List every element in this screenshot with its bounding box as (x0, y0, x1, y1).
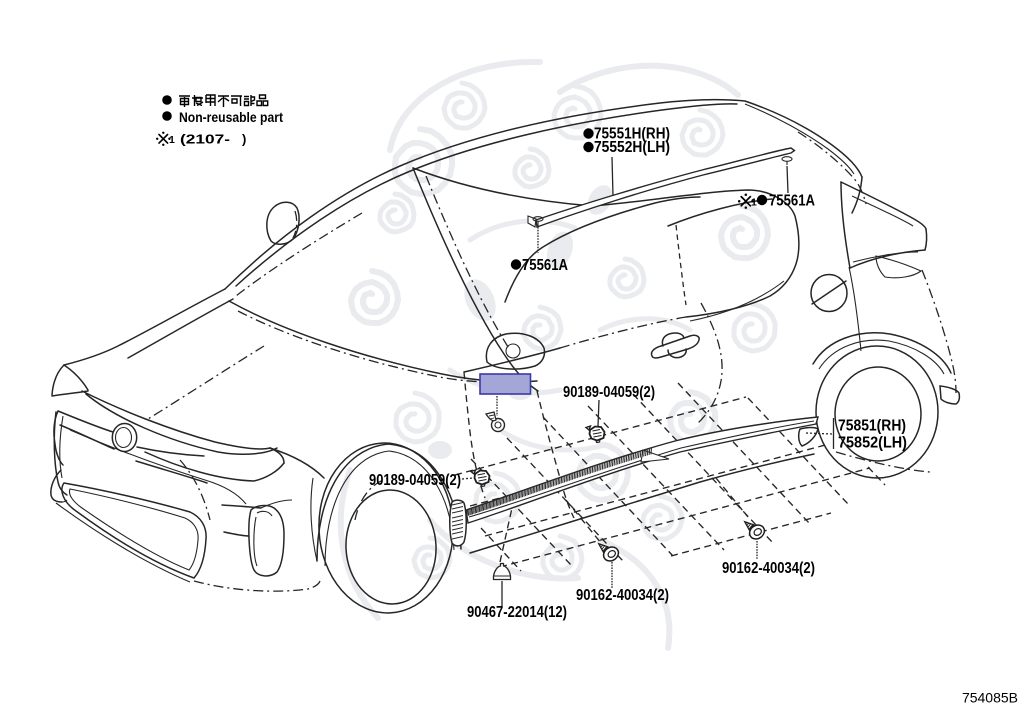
svg-text:75851(RH): 75851(RH) (838, 418, 906, 435)
svg-text:90189-04059(2): 90189-04059(2) (369, 472, 461, 489)
svg-text:75552H(LH): 75552H(LH) (594, 139, 670, 156)
svg-text:Non-reusable part: Non-reusable part (179, 110, 283, 125)
svg-text:(2107-: (2107- (180, 132, 230, 147)
svg-text:90162-40034(2): 90162-40034(2) (722, 560, 815, 577)
svg-text:75561A: 75561A (522, 257, 568, 274)
svg-text:90189-04059(2): 90189-04059(2) (563, 384, 655, 401)
svg-text:754085B: 754085B (962, 690, 1018, 706)
svg-text:90467-22014(12): 90467-22014(12) (467, 604, 567, 621)
svg-text:1: 1 (751, 197, 757, 209)
svg-text:75852(LH): 75852(LH) (838, 435, 907, 452)
svg-text:90162-40034(2): 90162-40034(2) (576, 587, 669, 604)
svg-text:75561A: 75561A (769, 193, 815, 210)
svg-text:1: 1 (169, 134, 175, 146)
svg-text:): ) (242, 132, 246, 147)
